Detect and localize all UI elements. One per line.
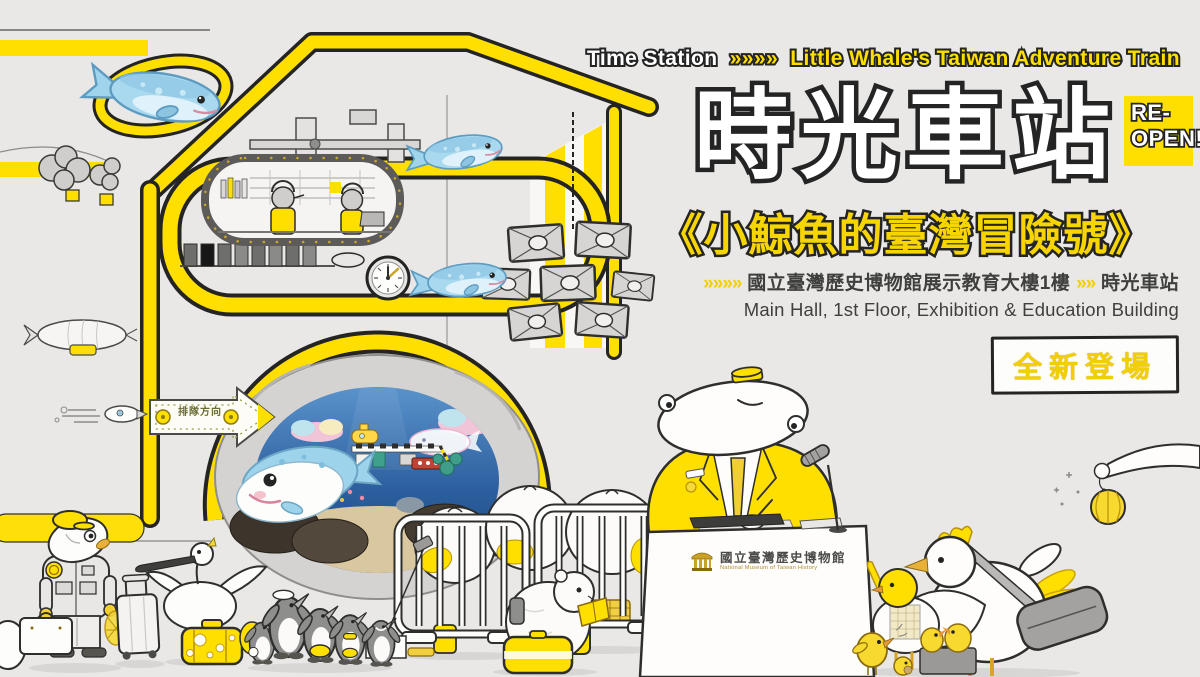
- rainbow-cloud-1: [291, 419, 343, 442]
- rolling-suitcase: [115, 574, 159, 660]
- reopen-line1: RE-: [1131, 100, 1170, 126]
- location-en: Main Hall, 1st Floor, Exhibition & Educa…: [703, 299, 1179, 321]
- subtitle: 《小鯨魚的臺灣冒險號》: [626, 199, 1186, 263]
- tagline-left: Time Station: [587, 47, 717, 71]
- steam-clouds: [39, 146, 120, 205]
- time-train-control-room: [205, 158, 400, 242]
- airship: [24, 320, 137, 355]
- rocket: [55, 406, 147, 422]
- reopen-badge: RE- OPEN!: [1124, 96, 1193, 166]
- wall-clock: [367, 257, 409, 299]
- tagline-right: Little Whale's Taiwan Adventure Train: [790, 47, 1180, 71]
- location-chevrons-mid-icon: »»: [1076, 273, 1095, 294]
- museum-logo: 國立臺灣歷史博物館 National Museum of Taiwan Hist…: [690, 549, 846, 573]
- reopen-line2: OPEN!: [1131, 126, 1200, 152]
- location-chevrons-lead-icon: »»»»: [703, 273, 741, 294]
- museum-name-en: National Museum of Taiwan History: [720, 565, 846, 571]
- chicken-family: [851, 526, 1111, 676]
- location-station-zh: 時光車站: [1101, 273, 1179, 294]
- en-tagline: Time Station »»»» Little Whale's Taiwan …: [587, 47, 1180, 71]
- page-title: 時光車站: [694, 86, 1118, 184]
- location-zh: »»»» 國立臺灣歷史博物館展示教育大樓1樓 »» 時光車站: [703, 268, 1179, 295]
- museum-name-zh: 國立臺灣歷史博物館: [720, 551, 846, 565]
- subtitle-text: 《小鯨魚的臺灣冒險號》: [659, 199, 1154, 263]
- exhibition-poster: Time Station »»»» Little Whale's Taiwan …: [0, 0, 1200, 677]
- title-text: 時光車站: [694, 86, 1118, 184]
- information-podium: [640, 514, 874, 677]
- new-release-badge: 全新登場: [991, 335, 1179, 394]
- briefcase: [20, 613, 72, 654]
- tagline-chevrons-icon: »»»»: [730, 47, 778, 71]
- hand-with-yarn-ball: [1054, 444, 1200, 524]
- museum-building-icon: [690, 549, 714, 573]
- location-block: »»»» 國立臺灣歷史博物館展示教育大樓1樓 »» 時光車站 Main Hall…: [703, 268, 1179, 321]
- yellow-suitcase: [504, 631, 572, 673]
- location-venue-zh: 國立臺灣歷史博物館展示教育大樓1樓: [747, 273, 1070, 294]
- queue-arrow-label: 排隊方向: [168, 407, 232, 418]
